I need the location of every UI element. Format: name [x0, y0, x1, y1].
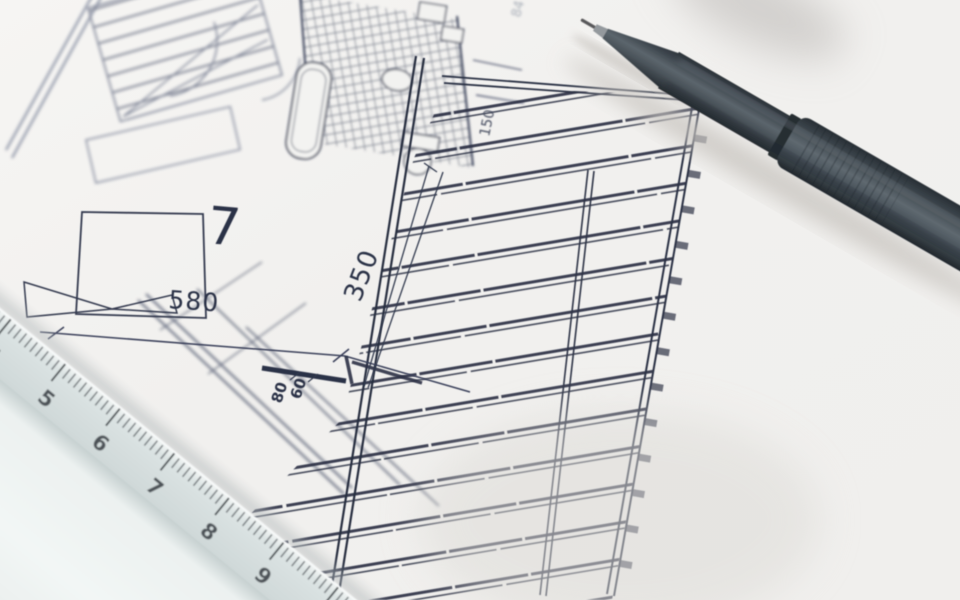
room-7-label: 7 [205, 196, 244, 259]
bathroom-fixture-2 [441, 26, 464, 43]
bathroom-fixture [417, 2, 446, 23]
dimension-580-label: 580 [168, 285, 221, 317]
scene-photo: 7 580 350 80 60 150 84 4 5 6 7 8 9 [0, 0, 960, 600]
